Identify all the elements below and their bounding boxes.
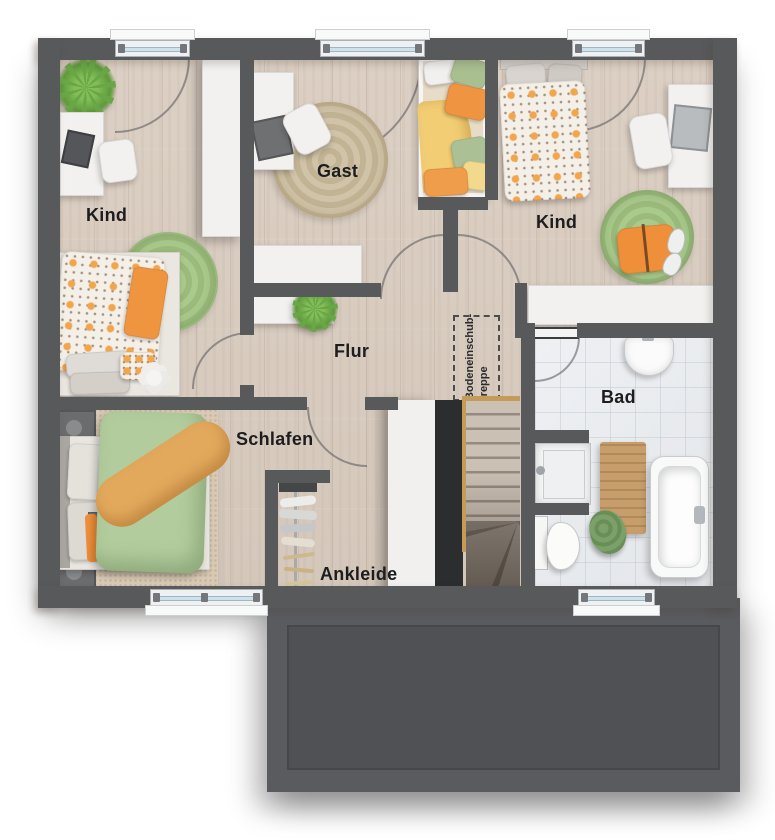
window-sill-gast [315, 29, 430, 40]
wall-kindright-south-b [577, 323, 713, 338]
window-hinge [581, 593, 588, 602]
floor-plan: Bodeneinschub- treppe [0, 0, 775, 840]
plant-kind-left [56, 58, 116, 118]
attic-stairs-note-line1: Bodeneinschub- [462, 316, 476, 400]
shower-faucet [536, 466, 545, 475]
room-label-kind-right: Kind [536, 212, 577, 233]
closet-top-bar [279, 483, 317, 492]
terrace-inner-panel [287, 625, 720, 770]
window-glass [582, 596, 651, 601]
duvet-kind-right [499, 80, 591, 202]
window-schlafen [150, 589, 263, 606]
wall-shower-bottom [527, 503, 589, 515]
window-sill-schlafen [145, 605, 268, 616]
wall-ankleide-left [265, 470, 278, 597]
wall-kindleft-gast [240, 60, 254, 335]
window-glass [576, 47, 641, 52]
window-hinge [201, 593, 208, 602]
window-hinge [323, 44, 330, 53]
room-label-bad: Bad [601, 387, 636, 408]
window-kind-right [572, 40, 645, 57]
wall-flur-stub [443, 197, 458, 292]
wall-gast-kindright [485, 60, 498, 200]
wall-gast-south [254, 283, 381, 297]
nightstand-knob-1 [66, 420, 82, 436]
shower-inner [543, 450, 585, 499]
terrace [267, 598, 740, 792]
window-hinge [645, 593, 652, 602]
room-label-ankleide: Ankleide [320, 564, 397, 585]
flower-table-kind-left [146, 370, 162, 386]
window-hinge [415, 44, 422, 53]
sideboard-kind-right [528, 285, 715, 325]
wall-schlafen-north-a [60, 397, 307, 410]
window-kind-left [115, 40, 190, 57]
bathtub-faucet [694, 506, 705, 524]
sideboard-gast [252, 245, 362, 285]
wall-outer-right [713, 38, 737, 608]
wall-outer-left [38, 38, 60, 608]
window-gast [320, 40, 425, 57]
wall-bad-west [521, 338, 535, 586]
chair-kind-left [97, 138, 138, 185]
window-bad [578, 589, 655, 606]
attic-stairs-dashed-box: Bodeneinschub- treppe [453, 315, 500, 401]
window-hinge [153, 593, 160, 602]
room-label-flur: Flur [334, 341, 369, 362]
attic-stairs-note: Bodeneinschub- treppe [455, 316, 499, 400]
bathroom-door-leaf [533, 327, 579, 339]
wall-shower-top [527, 430, 589, 443]
attic-stairs-note-line2: treppe [477, 316, 491, 400]
window-sill-kind-right [567, 29, 650, 40]
window-glass [324, 47, 421, 52]
room-label-schlafen: Schlafen [236, 429, 313, 450]
pillow-gast-orange2 [423, 166, 469, 197]
window-hinge [575, 44, 582, 53]
window-hinge [253, 593, 260, 602]
wardrobe-kind-left [202, 58, 244, 237]
wall-kindright-south-a [515, 323, 535, 338]
window-hinge [635, 44, 642, 53]
stairs-shading [466, 401, 520, 593]
wall-kindright-west [515, 283, 527, 328]
laptop-kind-right [670, 104, 712, 152]
wall-schlafen-north-b [365, 397, 398, 410]
window-glass [119, 47, 186, 52]
window-hinge [118, 44, 125, 53]
stairwell-void [435, 400, 463, 593]
window-hinge [180, 44, 187, 53]
room-label-kind-left: Kind [86, 205, 127, 226]
window-sill-bad [573, 605, 660, 616]
window-sill-kind-left [110, 29, 195, 40]
room-label-gast: Gast [317, 161, 358, 182]
